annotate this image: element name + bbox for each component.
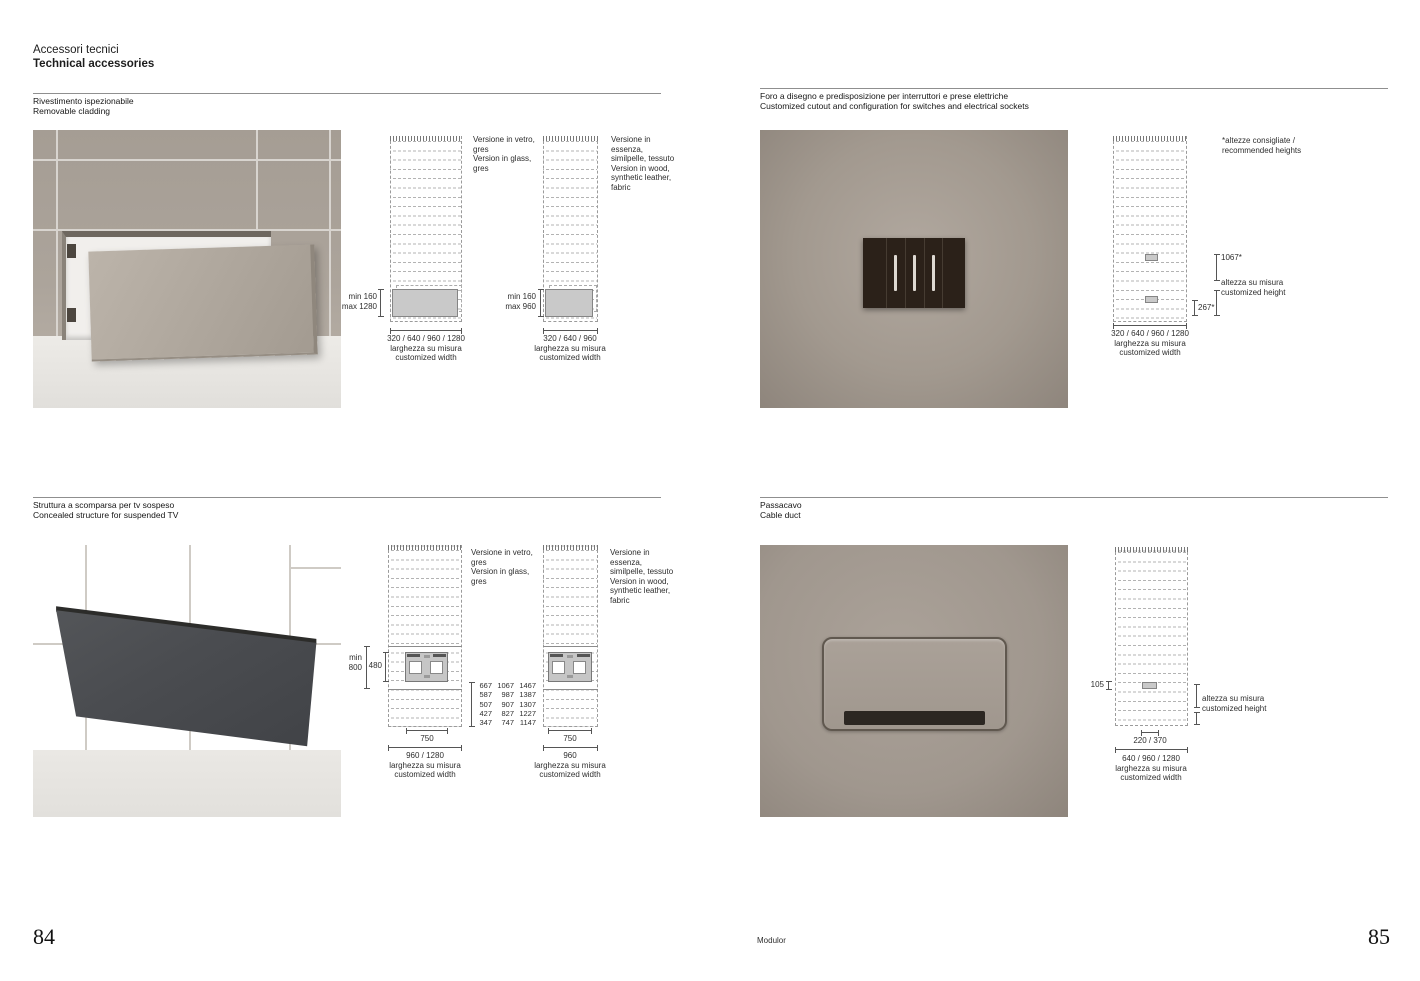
section-rule xyxy=(33,93,661,94)
section-title-tv-it: Struttura a scomparsa per tv sospeso xyxy=(33,500,174,510)
height-table: 667 587 507 427 347 1067 987 907 827 747… xyxy=(476,681,536,727)
width-note-it: larghezza su misura xyxy=(520,344,620,354)
width-note-en: customized width xyxy=(1103,773,1199,783)
width-note-en: customized width xyxy=(376,353,476,363)
dim-label-min800: min 800 xyxy=(340,653,362,672)
height-table-col: 1067 987 907 827 747 xyxy=(497,681,514,727)
mount-cutout xyxy=(409,661,422,674)
cable-duct-panel xyxy=(822,637,1008,731)
width-note-en: customized width xyxy=(520,353,620,363)
cladding-box-glass xyxy=(392,289,458,317)
height-table-col: 1467 1387 1307 1227 1147 xyxy=(519,681,536,727)
tile-joint xyxy=(33,229,341,231)
dim-label-480: 480 xyxy=(364,661,382,671)
switch-rocker xyxy=(913,255,916,291)
dim-label-duct-width: 220 / 370 xyxy=(1126,736,1174,746)
plate-divider xyxy=(886,238,887,308)
page-title-english: Technical accessories xyxy=(33,58,154,72)
width-values: 640 / 960 / 1280 xyxy=(1103,754,1199,764)
switch-rocker xyxy=(894,255,897,291)
width-values: 960 / 1280 xyxy=(377,751,473,761)
cable-duct-brush xyxy=(844,711,986,724)
dim-line-105 xyxy=(1108,681,1109,690)
structure-line-top xyxy=(543,646,598,647)
mount-strip xyxy=(407,654,420,657)
dim-line-custom-height-lower xyxy=(1196,712,1197,725)
dim-label-750: 750 xyxy=(406,734,448,744)
mount-mark xyxy=(424,655,430,658)
structure-line-bottom xyxy=(388,689,462,690)
section-title-cladding-en: Removable cladding xyxy=(33,106,110,116)
height-table-col: 667 587 507 427 347 xyxy=(476,681,492,727)
dim-label-750: 750 xyxy=(548,734,592,744)
width-note-it: larghezza su misura xyxy=(1103,764,1199,774)
photo-switches xyxy=(760,130,1068,408)
plate-divider xyxy=(905,238,906,308)
dim-line-width xyxy=(543,330,598,331)
section-rule xyxy=(33,497,661,498)
hinge xyxy=(67,244,76,258)
dim-line-1067 xyxy=(1216,254,1217,281)
dim-line-750 xyxy=(406,730,448,731)
switches-diagram-column xyxy=(1113,136,1187,322)
tv-diagram-glass-column xyxy=(388,545,462,727)
tile-joint xyxy=(33,159,341,161)
wall-hatch xyxy=(388,545,462,550)
section-title-switches-en: Customized cutout and configuration for … xyxy=(760,101,1029,111)
socket-upper xyxy=(1145,254,1158,261)
dim-label-1067: 1067* xyxy=(1221,253,1242,263)
height-note: altezza su misura customized height xyxy=(1202,694,1272,713)
dim-label-105: 105 xyxy=(1085,680,1104,690)
dim-line-width xyxy=(388,747,462,748)
plate-divider xyxy=(942,238,943,308)
duct-opening xyxy=(1142,682,1157,689)
removable-panel xyxy=(88,245,317,362)
dim-label-267: 267* xyxy=(1198,303,1214,313)
width-values: 320 / 640 / 960 / 1280 xyxy=(376,334,476,344)
dim-label-box-height: min 160 max 960 xyxy=(489,292,536,311)
page-title-italian: Accessori tecnici xyxy=(33,44,119,58)
tile-joint xyxy=(289,567,341,569)
lower-wall xyxy=(33,750,341,817)
tv-mount-box xyxy=(548,652,592,682)
dim-line-custom-height-upper xyxy=(1196,684,1197,708)
material-note-wood: Versione in essenza, similpelle, tessuto… xyxy=(610,548,680,605)
section-title-duct-it: Passacavo xyxy=(760,500,802,510)
dim-line-width xyxy=(1115,749,1188,750)
recommended-heights-note: *altezze consigliate / recommended heigh… xyxy=(1222,136,1302,155)
dim-label-box-height: min 160 max 1280 xyxy=(330,292,377,311)
switch-rocker xyxy=(932,255,935,291)
dim-line-267 xyxy=(1194,300,1195,316)
mount-mark xyxy=(424,675,430,678)
width-note-it: larghezza su misura xyxy=(377,761,473,771)
dim-line-750 xyxy=(548,730,592,731)
mount-strip xyxy=(433,654,446,657)
section-title-switches-it: Foro a disegno e predisposizione per int… xyxy=(760,91,1008,101)
section-title-tv-en: Concealed structure for suspended TV xyxy=(33,510,178,520)
section-title-duct-en: Cable duct xyxy=(760,510,801,520)
material-note-wood: Versione in essenza, similpelle, tessuto… xyxy=(611,135,681,192)
mount-cutout xyxy=(573,661,586,674)
mount-mark xyxy=(567,655,573,658)
width-note-en: customized width xyxy=(1100,348,1200,358)
photo-cable-duct xyxy=(760,545,1068,817)
mount-strip xyxy=(577,654,590,657)
mount-cutout xyxy=(552,661,565,674)
hinge xyxy=(67,308,76,322)
width-note-en: customized width xyxy=(377,770,473,780)
section-title-cladding-it: Rivestimento ispezionabile xyxy=(33,96,134,106)
brand-name: Modulor xyxy=(757,936,786,945)
width-note-it: larghezza su misura xyxy=(522,761,618,771)
dim-line-duct-width xyxy=(1141,732,1159,733)
width-note-en: customized width xyxy=(522,770,618,780)
page-number-right: 85 xyxy=(1350,924,1390,950)
wall-hatch xyxy=(390,136,462,141)
height-table-bracket xyxy=(471,682,472,727)
cladding-box-wood xyxy=(545,289,593,317)
dim-line-480 xyxy=(385,652,386,682)
mount-strip xyxy=(550,654,563,657)
photo-removable-cladding xyxy=(33,130,341,408)
section-rule xyxy=(760,497,1388,498)
width-note-it: larghezza su misura xyxy=(1100,339,1200,349)
wall-hatch xyxy=(543,136,598,141)
material-note-glass: Versione in vetro, gres Version in glass… xyxy=(471,548,541,586)
page-number-left: 84 xyxy=(33,924,55,950)
width-values: 320 / 640 / 960 / 1280 xyxy=(1100,329,1200,339)
width-values: 960 xyxy=(522,751,618,761)
tv-diagram-wood-column xyxy=(543,545,598,727)
dim-line-width xyxy=(1113,325,1187,326)
dim-line-box-height xyxy=(380,289,381,317)
wall-hatch xyxy=(543,545,598,550)
mount-cutout xyxy=(430,661,443,674)
tv-mount-box xyxy=(405,652,448,682)
structure-line-top xyxy=(388,646,462,647)
dim-line-custom-height xyxy=(1216,290,1217,316)
structure-line-bottom xyxy=(543,689,598,690)
socket-lower xyxy=(1145,296,1158,303)
width-note-it: larghezza su misura xyxy=(376,344,476,354)
photo-suspended-tv xyxy=(33,545,341,817)
mount-mark xyxy=(567,675,573,678)
width-values: 320 / 640 / 960 xyxy=(520,334,620,344)
wall-hatch xyxy=(1113,136,1187,141)
dim-line-width xyxy=(543,747,598,748)
dim-line-box-height xyxy=(540,289,541,317)
plate-divider xyxy=(924,238,925,308)
switch-plate xyxy=(863,238,965,308)
wall-hatch xyxy=(1115,547,1188,552)
material-note-glass: Versione in vetro, gres Version in glass… xyxy=(473,135,543,173)
section-rule xyxy=(760,88,1388,89)
duct-diagram-column xyxy=(1115,547,1188,726)
height-note: altezza su misura customized height xyxy=(1221,278,1291,297)
dim-line-width xyxy=(390,330,462,331)
